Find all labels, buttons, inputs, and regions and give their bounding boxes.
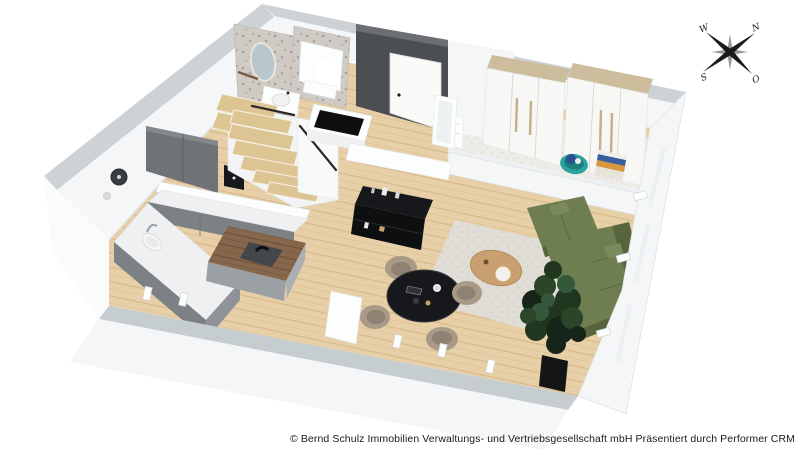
table-glass <box>426 301 431 306</box>
washbasin <box>272 94 290 106</box>
compass-label-east: O <box>751 74 762 86</box>
wardrobe-handle <box>516 98 517 132</box>
table-plate <box>413 298 419 304</box>
laundry-cloth <box>566 154 576 164</box>
plant-leaf <box>561 307 583 329</box>
basin-faucet <box>287 92 290 95</box>
wardrobe-handle <box>611 113 612 153</box>
plant-leaf <box>557 275 575 293</box>
coffee-table-tray <box>496 267 511 282</box>
coffee-machine-cup <box>233 177 236 180</box>
plant-leaf <box>544 261 562 279</box>
compass-label-north: N <box>750 22 763 35</box>
compass-label-west: W <box>698 22 711 35</box>
coffee-table-item <box>484 260 489 265</box>
plant-leaf <box>546 334 566 354</box>
plant-leaf <box>570 326 586 342</box>
wall-clock-center <box>117 175 121 179</box>
compass-label-south: S <box>700 72 709 84</box>
dining-chair <box>360 305 390 329</box>
laundry-cloth-white <box>575 158 581 164</box>
floorplan-page: W N S O © Bernd Schulz Immobilien Verwal… <box>0 0 800 450</box>
compass-rose: W N S O <box>698 22 763 87</box>
copyright-credit: © Bernd Schulz Immobilien Verwaltungs- u… <box>290 433 795 445</box>
compass-center <box>728 50 732 54</box>
table-vase-mouth <box>435 286 439 290</box>
wardrobe-handle <box>600 110 601 150</box>
dining-chair <box>452 281 482 305</box>
wall-lamp <box>104 193 111 200</box>
door-handle <box>397 93 400 96</box>
wall-stub <box>325 291 362 344</box>
shelf-item <box>379 226 385 232</box>
plant-leaf <box>541 293 555 307</box>
floor-mirror-glass <box>436 100 453 144</box>
wardrobe-handle <box>530 101 531 135</box>
apartment-3d-floorplan: W N S O <box>0 0 800 450</box>
plant-leaf <box>520 308 536 324</box>
plant-pot <box>539 355 568 392</box>
